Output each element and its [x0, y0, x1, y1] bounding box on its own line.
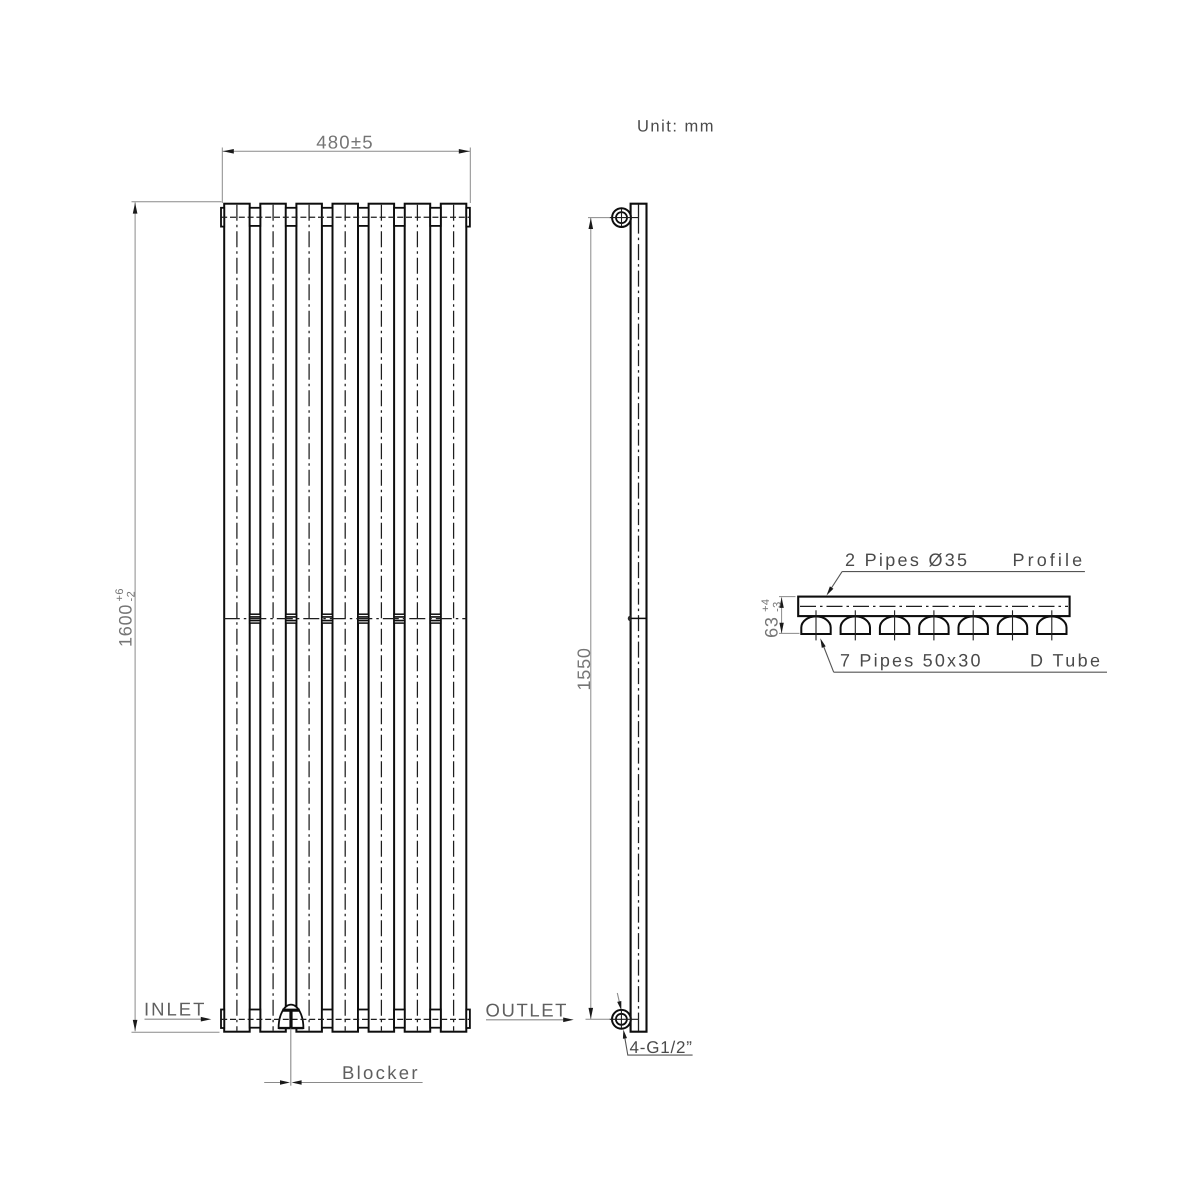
- svg-text:OUTLET: OUTLET: [486, 1000, 569, 1021]
- svg-text:63: 63: [762, 616, 782, 638]
- svg-text:-3: -3: [771, 601, 783, 612]
- svg-text:-2: -2: [125, 591, 137, 602]
- svg-text:2 Pipes Ø35: 2 Pipes Ø35: [845, 550, 969, 570]
- svg-text:1550: 1550: [574, 647, 594, 690]
- svg-text:Unit: mm: Unit: mm: [637, 118, 715, 136]
- svg-text:480±5: 480±5: [316, 132, 374, 153]
- svg-text:INLET: INLET: [144, 999, 206, 1020]
- svg-text:Blocker: Blocker: [342, 1062, 420, 1083]
- svg-text:D Tube: D Tube: [1030, 651, 1102, 671]
- svg-text:1600: 1600: [116, 604, 136, 647]
- svg-text:Profile: Profile: [1013, 550, 1086, 570]
- svg-text:7 Pipes 50x30: 7 Pipes 50x30: [840, 651, 983, 671]
- svg-text:+4: +4: [760, 599, 772, 612]
- svg-text:+6: +6: [114, 588, 126, 601]
- svg-text:4-G1/2”: 4-G1/2”: [630, 1038, 693, 1057]
